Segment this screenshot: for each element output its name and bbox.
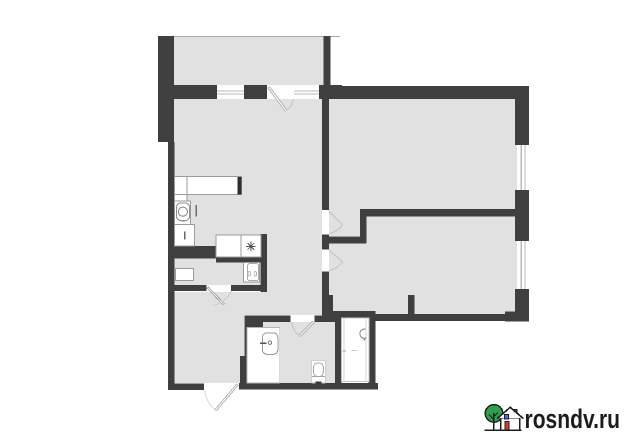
svg-text:rosndv.ru: rosndv.ru <box>525 404 621 434</box>
